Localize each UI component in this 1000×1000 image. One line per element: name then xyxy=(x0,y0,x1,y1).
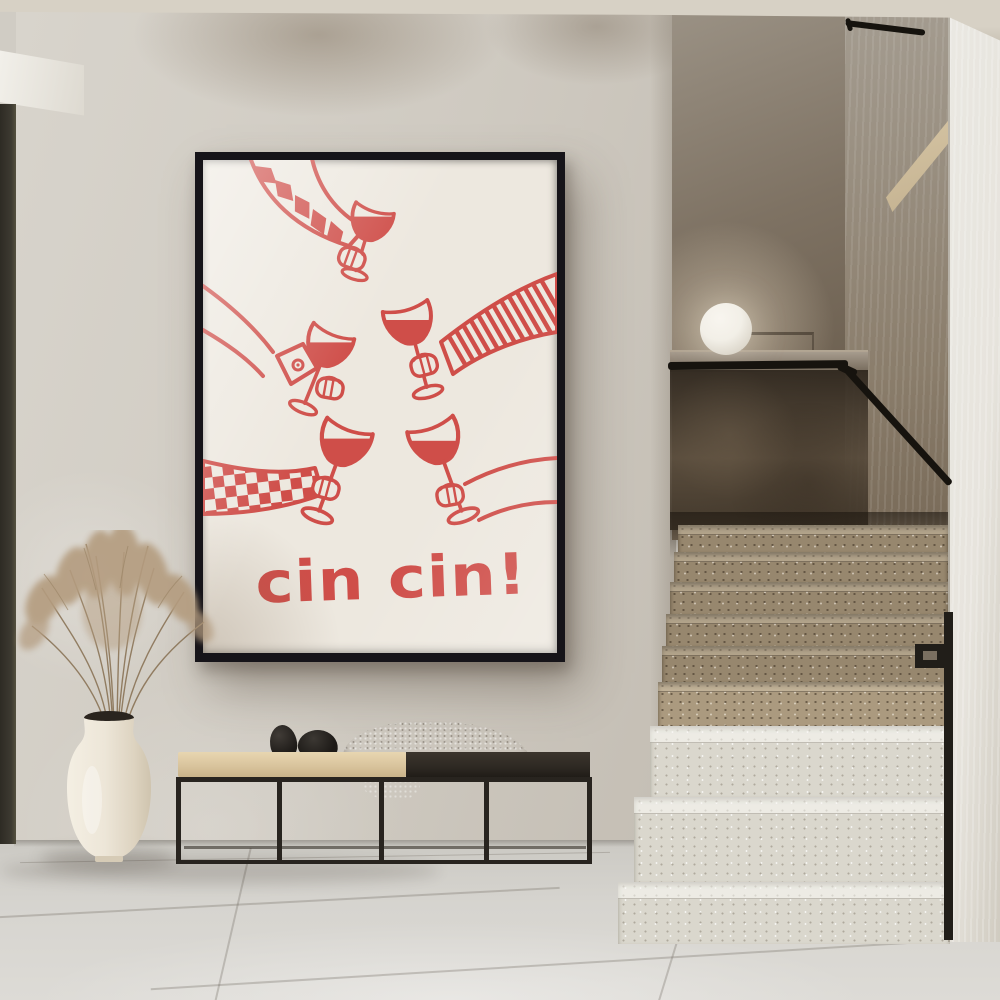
stair-step-upper xyxy=(658,682,948,726)
right-column xyxy=(948,16,1000,942)
bench xyxy=(176,750,592,872)
scene-root: cin cin! xyxy=(0,0,1000,1000)
door-frame-strip xyxy=(0,104,16,844)
stair-step-upper xyxy=(670,582,948,614)
bench-frame-back-rail xyxy=(184,846,586,849)
stair-step-upper xyxy=(662,646,948,682)
stair-step-lower xyxy=(618,882,950,944)
bench-frame-bottom-rail xyxy=(176,860,592,864)
bench-cushion xyxy=(178,752,406,777)
stair-step-lower xyxy=(634,797,950,882)
poster-canvas: cin cin! xyxy=(203,160,557,653)
floor-seam xyxy=(0,887,560,919)
toasting-hand xyxy=(409,351,439,378)
bench-frame-rail xyxy=(176,777,592,782)
stair-step-lower xyxy=(650,726,950,797)
bench-leg xyxy=(587,777,592,864)
stair-step-upper xyxy=(666,614,948,646)
poster-title: cin cin! xyxy=(254,541,528,616)
pampas-grass xyxy=(8,530,228,730)
toasting-hand xyxy=(435,482,464,507)
staircase xyxy=(612,14,950,944)
poster-frame: cin cin! xyxy=(195,152,565,662)
sleeve-striped xyxy=(420,233,557,417)
sleeve-checkerboard xyxy=(203,453,327,522)
stair-step-upper xyxy=(674,552,948,582)
toasting-hand xyxy=(315,375,344,400)
stair-step-upper xyxy=(678,525,948,552)
bench-leg xyxy=(176,777,181,864)
wine-glass-5 xyxy=(359,410,502,547)
sleeve-cuff-button xyxy=(203,286,317,384)
sphere-lamp xyxy=(700,303,752,355)
smoked-glass-balustrade xyxy=(670,370,868,530)
sleeve-triangle-pattern xyxy=(249,160,365,249)
handrail-bracket xyxy=(915,644,947,668)
bench-leg xyxy=(277,777,282,864)
bench-leg xyxy=(484,777,489,864)
vase xyxy=(62,710,156,862)
wine-toast-artwork: cin cin! xyxy=(203,160,557,653)
bench-tabletop xyxy=(406,752,590,777)
bench-leg xyxy=(379,777,384,864)
